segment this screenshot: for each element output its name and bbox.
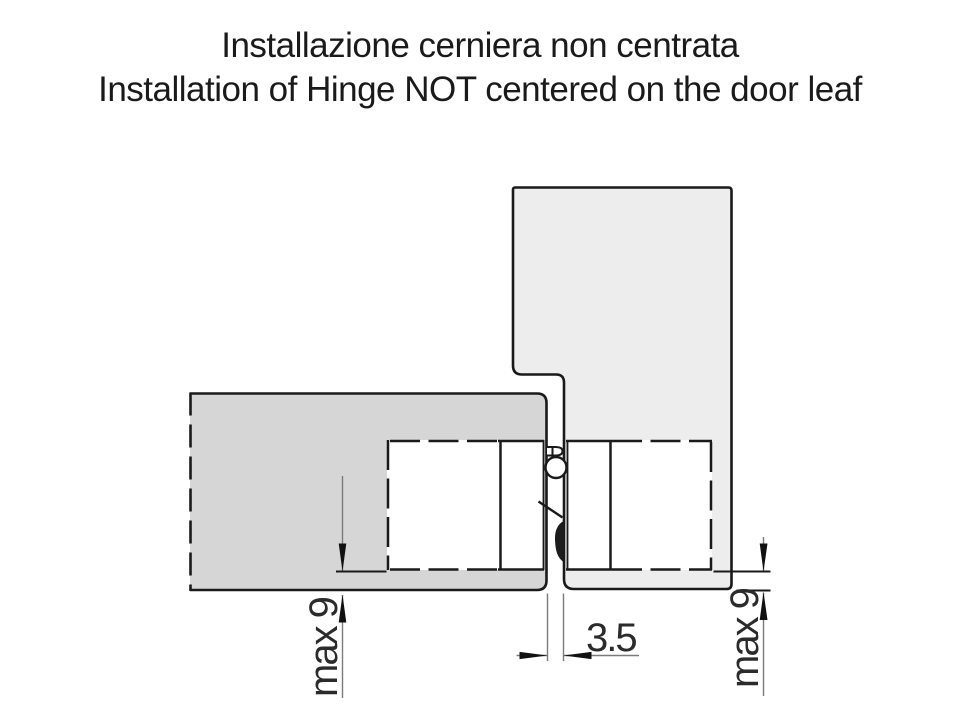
gap-dim-label: 3.5 xyxy=(586,616,636,660)
mortise-left-fill xyxy=(387,440,544,570)
dimension-gap: 3.5 xyxy=(517,594,640,662)
left-offset-label: max 9 xyxy=(302,597,346,697)
gap-arrow-right-icon xyxy=(520,652,548,659)
technical-drawing: 3.5 max 9 max 9 xyxy=(0,0,960,720)
hinge-pin-cap xyxy=(547,447,563,456)
mortise-right-fill xyxy=(568,440,713,570)
hinge-knuckle-circle xyxy=(546,457,567,478)
hinge-arm-capsule xyxy=(555,522,563,562)
right-arrow-down-icon xyxy=(760,544,768,572)
right-offset-label: max 9 xyxy=(723,588,767,688)
